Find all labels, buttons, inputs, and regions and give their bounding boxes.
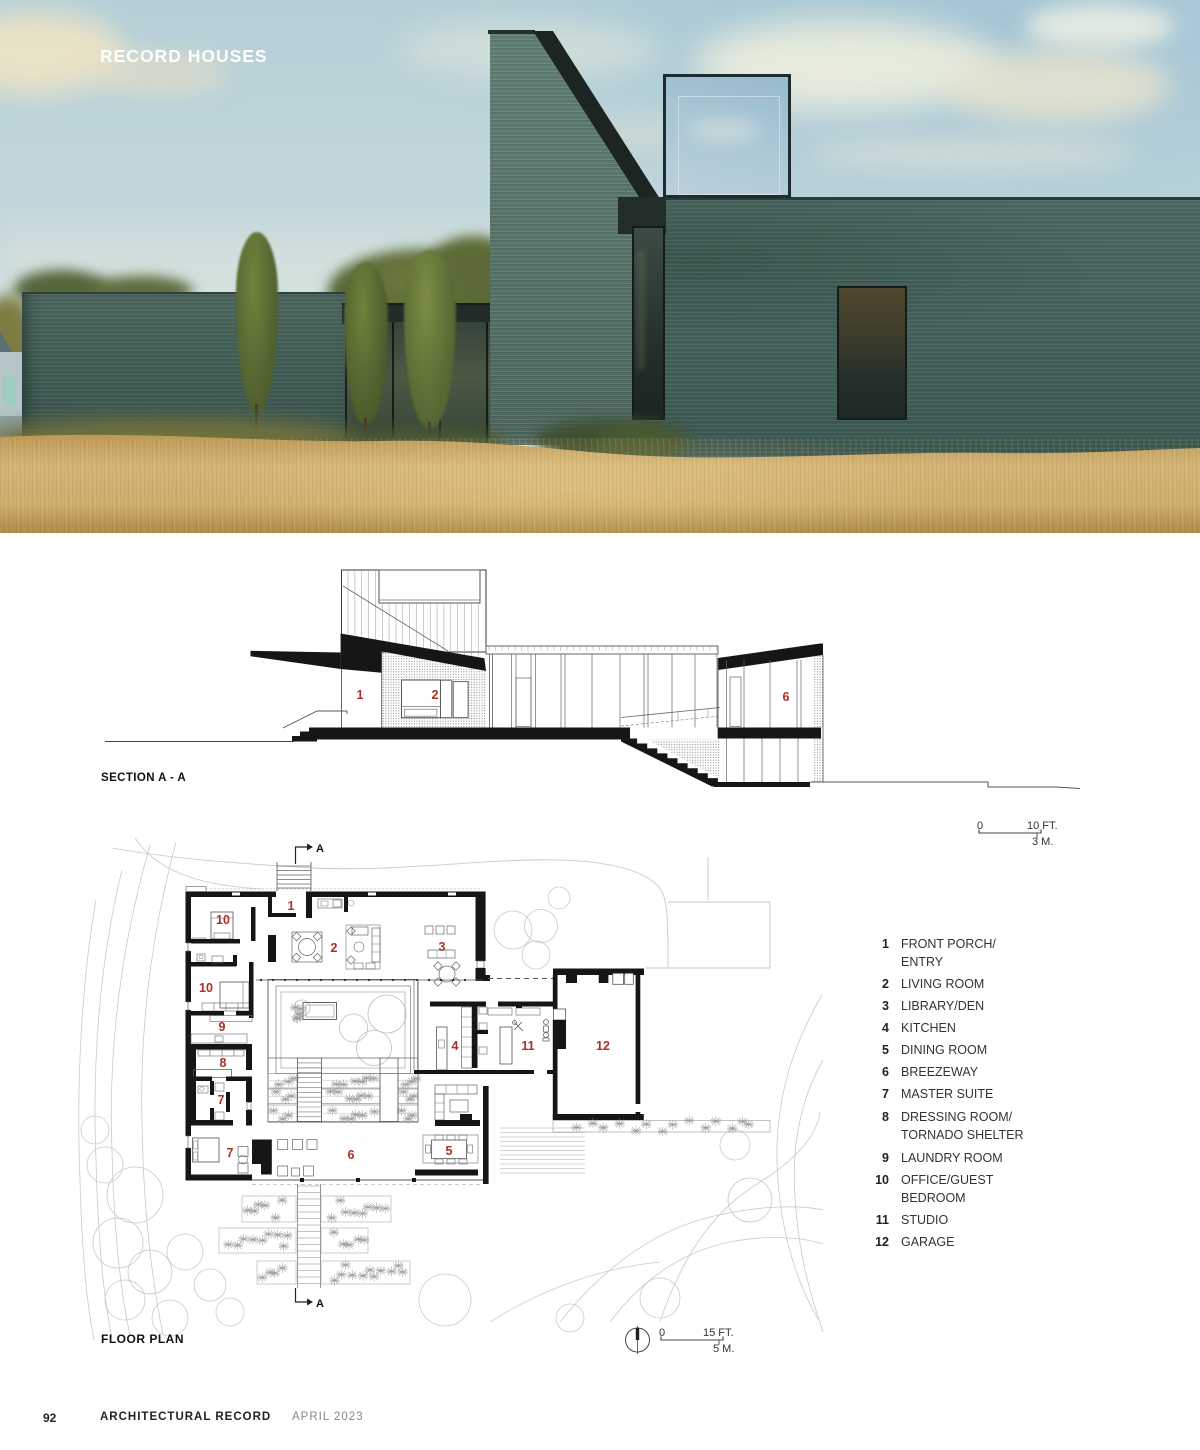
svg-text:5 M.: 5 M. <box>713 1343 734 1355</box>
svg-text:A: A <box>316 843 324 855</box>
svg-text:4: 4 <box>882 1021 889 1035</box>
svg-text:A: A <box>316 1298 324 1310</box>
svg-text:5: 5 <box>446 1144 453 1158</box>
svg-text:7: 7 <box>218 1093 225 1107</box>
svg-text:0: 0 <box>659 1327 665 1339</box>
svg-text:TORNADO SHELTER: TORNADO SHELTER <box>901 1128 1023 1142</box>
svg-text:1: 1 <box>357 688 364 702</box>
svg-text:2: 2 <box>882 977 889 991</box>
svg-text:FLOOR PLAN: FLOOR PLAN <box>101 1332 184 1346</box>
svg-text:LIBRARY/DEN: LIBRARY/DEN <box>901 999 984 1013</box>
svg-text:0: 0 <box>977 820 983 832</box>
svg-text:OFFICE/GUEST: OFFICE/GUEST <box>901 1173 994 1187</box>
svg-text:BEDROOM: BEDROOM <box>901 1191 966 1205</box>
svg-text:STUDIO: STUDIO <box>901 1213 949 1227</box>
svg-text:15 FT.: 15 FT. <box>703 1327 734 1339</box>
svg-text:LAUNDRY ROOM: LAUNDRY ROOM <box>901 1151 1003 1165</box>
svg-text:3: 3 <box>439 940 446 954</box>
svg-text:11: 11 <box>876 1213 889 1227</box>
svg-text:SECTION A - A: SECTION A - A <box>101 772 186 784</box>
svg-text:11: 11 <box>521 1039 534 1053</box>
svg-text:10 FT.: 10 FT. <box>1027 820 1058 832</box>
svg-text:1: 1 <box>882 937 889 951</box>
svg-text:10: 10 <box>199 981 213 995</box>
svg-text:2: 2 <box>331 941 338 955</box>
svg-text:MASTER SUITE: MASTER SUITE <box>901 1087 993 1101</box>
svg-text:BREEZEWAY: BREEZEWAY <box>901 1065 979 1079</box>
svg-text:12: 12 <box>596 1039 610 1053</box>
svg-text:6: 6 <box>882 1065 889 1079</box>
svg-text:KITCHEN: KITCHEN <box>901 1021 956 1035</box>
svg-text:1: 1 <box>288 899 295 913</box>
svg-text:8: 8 <box>220 1056 227 1070</box>
svg-text:ENTRY: ENTRY <box>901 955 944 969</box>
svg-text:6: 6 <box>783 690 790 704</box>
svg-text:4: 4 <box>452 1039 459 1053</box>
svg-text:8: 8 <box>882 1110 889 1124</box>
svg-text:2: 2 <box>432 688 439 702</box>
svg-text:10: 10 <box>875 1173 889 1187</box>
svg-text:5: 5 <box>882 1043 889 1057</box>
svg-text:9: 9 <box>882 1151 889 1165</box>
svg-text:DRESSING ROOM/: DRESSING ROOM/ <box>901 1110 1013 1124</box>
svg-text:3 M.: 3 M. <box>1032 836 1053 848</box>
svg-text:7: 7 <box>227 1146 234 1160</box>
svg-text:LIVING ROOM: LIVING ROOM <box>901 977 984 991</box>
svg-text:6: 6 <box>348 1148 355 1162</box>
svg-text:9: 9 <box>219 1020 226 1034</box>
svg-text:DINING ROOM: DINING ROOM <box>901 1043 987 1057</box>
svg-text:10: 10 <box>216 913 230 927</box>
svg-text:GARAGE: GARAGE <box>901 1235 955 1249</box>
svg-text:3: 3 <box>882 999 889 1013</box>
svg-text:7: 7 <box>882 1087 889 1101</box>
svg-text:12: 12 <box>875 1235 889 1249</box>
svg-text:FRONT PORCH/: FRONT PORCH/ <box>901 937 996 951</box>
